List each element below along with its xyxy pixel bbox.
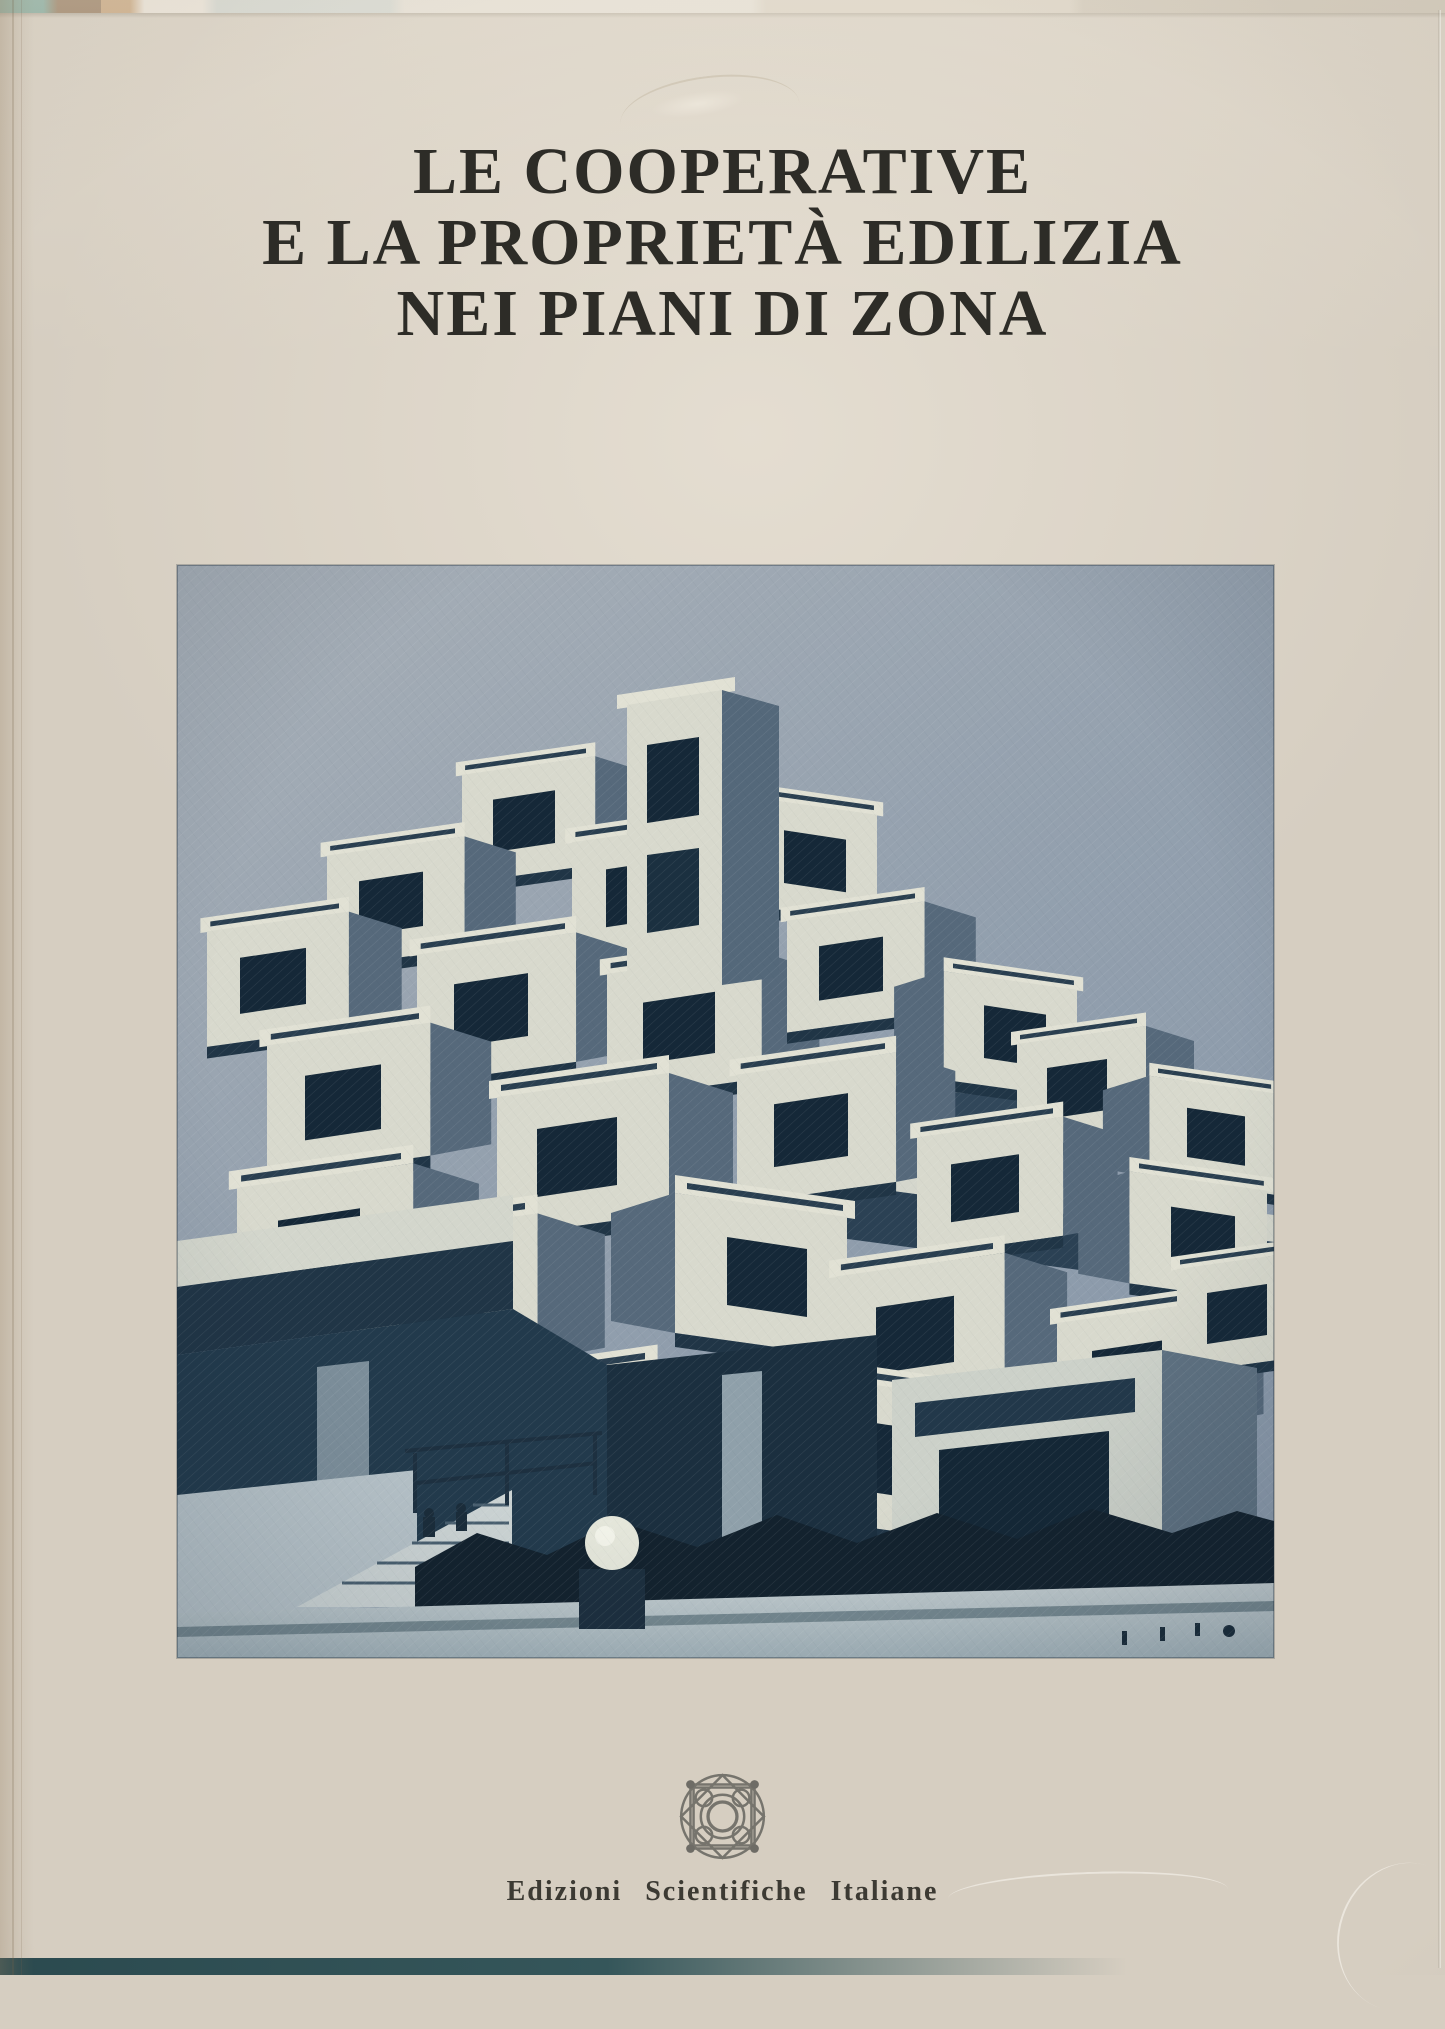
esi-rosette-icon xyxy=(676,1770,769,1863)
cover-title: LE COOPERATIVE E LA PROPRIETÀ EDILIZIA N… xyxy=(0,136,1445,349)
title-line-2: E LA PROPRIETÀ EDILIZIA xyxy=(0,207,1445,278)
book-cover-photo: { "cover": { "title_lines": ["LE COOPERA… xyxy=(0,0,1445,1975)
title-line-1: LE COOPERATIVE xyxy=(0,136,1445,207)
book-top-edge-shadow xyxy=(0,13,1445,18)
title-line-3: NEI PIANI DI ZONA xyxy=(0,278,1445,349)
table-surface-top xyxy=(0,0,1445,13)
habitat-67-photo xyxy=(177,565,1274,1658)
photo-vignette xyxy=(177,565,1274,1658)
table-surface-bottom xyxy=(0,1958,1445,1975)
publisher-name: Edizioni Scientifiche Italiane xyxy=(0,1876,1445,1908)
cover-crease xyxy=(1318,1845,1445,2028)
